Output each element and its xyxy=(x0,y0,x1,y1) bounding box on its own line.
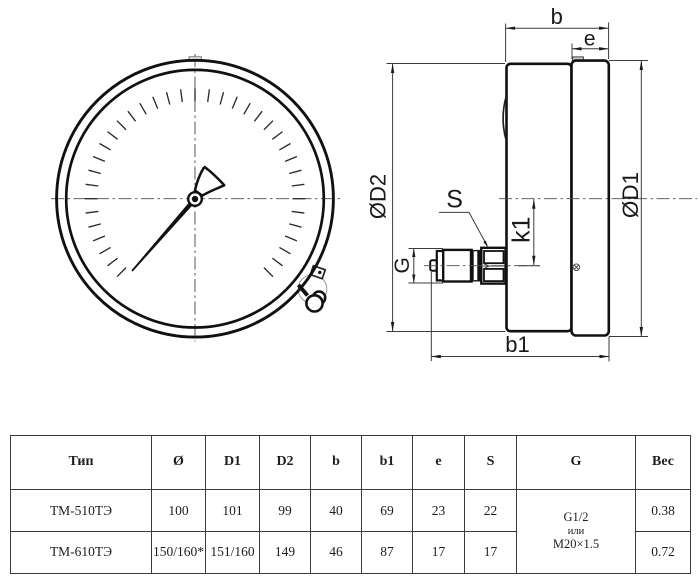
svg-text:ØD2: ØD2 xyxy=(366,174,391,219)
svg-text:k1: k1 xyxy=(508,216,536,242)
svg-text:S: S xyxy=(446,186,463,214)
svg-text:b1: b1 xyxy=(505,332,529,357)
svg-text:e: e xyxy=(584,28,596,51)
svg-text:G: G xyxy=(391,257,414,273)
svg-text:b: b xyxy=(551,4,563,29)
svg-text:ØD1: ØD1 xyxy=(618,172,643,218)
